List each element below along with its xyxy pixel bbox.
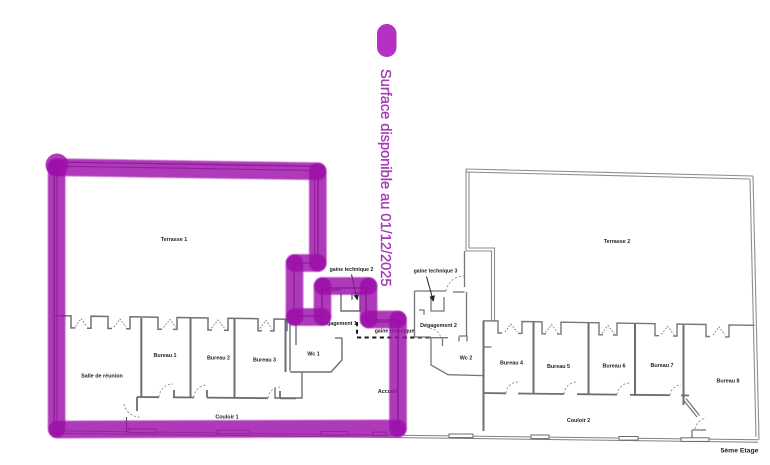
svg-text:Bureau 7: Bureau 7 — [650, 363, 673, 369]
svg-text:Terrasse 1: Terrasse 1 — [161, 237, 188, 243]
svg-text:Bureau 6: Bureau 6 — [602, 364, 625, 370]
svg-text:Bureau 1: Bureau 1 — [153, 353, 176, 359]
svg-text:Bureau 4: Bureau 4 — [500, 361, 523, 367]
svg-text:Wc 1: Wc 1 — [307, 352, 320, 358]
svg-text:5ème Etage: 5ème Etage — [721, 447, 759, 454]
svg-text:Bureau 2: Bureau 2 — [207, 356, 230, 362]
svg-text:Wc 2: Wc 2 — [460, 356, 473, 362]
svg-text:Dégagement 2: Dégagement 2 — [420, 323, 457, 329]
svg-text:Terrasse 2: Terrasse 2 — [604, 239, 631, 245]
svg-text:Surface disponible au 01/12/20: Surface disponible au 01/12/2025 — [377, 69, 393, 286]
svg-text:Bureau 3: Bureau 3 — [253, 358, 276, 364]
svg-text:gaine technique 2: gaine technique 2 — [330, 267, 374, 273]
svg-text:gaine technique 3: gaine technique 3 — [414, 269, 458, 275]
svg-text:Bureau 8: Bureau 8 — [716, 379, 739, 385]
svg-text:Bureau 5: Bureau 5 — [547, 364, 570, 370]
svg-text:Couloir 1: Couloir 1 — [215, 415, 238, 421]
svg-text:Salle de réunion: Salle de réunion — [81, 374, 123, 380]
svg-text:Couloir 2: Couloir 2 — [567, 418, 590, 424]
